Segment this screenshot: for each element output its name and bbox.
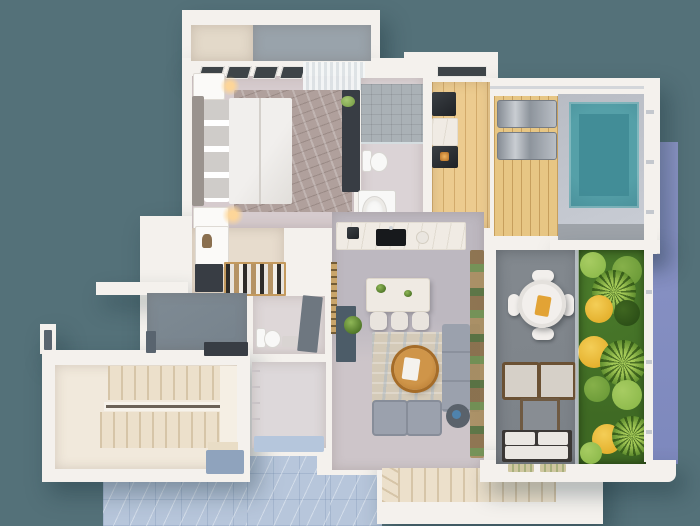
railing-post: [646, 160, 654, 164]
table-lamp-glow: [220, 76, 240, 96]
stair-side-landing: [220, 366, 237, 452]
powder-toilet-bowl: [264, 330, 281, 348]
kitchenette-cabinet: [432, 118, 458, 146]
pool-deep-zone: [579, 114, 629, 196]
wardrobe-rail-with-clothes: [224, 262, 286, 296]
blue-floor-right: [330, 468, 382, 526]
wall-shelf: [252, 418, 260, 420]
railing-post: [646, 290, 652, 294]
dining-stool: [370, 312, 387, 330]
stair-entry-door: [44, 330, 52, 350]
lower-threshold-mat: [206, 450, 244, 474]
outdoor-armchair: [502, 362, 540, 400]
wall-shelf: [252, 402, 260, 404]
shrub: [580, 442, 602, 464]
sun-lounger: [497, 132, 557, 160]
balcony-floor-cream: [191, 25, 253, 61]
pool-walkway: [558, 224, 646, 240]
hall-console-table: [204, 342, 248, 356]
pool-railing-top: [490, 86, 650, 89]
sectional-sofa-seats: [442, 324, 470, 412]
bedroom-window-icon: [279, 66, 306, 79]
entry-door: [146, 331, 156, 353]
door-mat: [540, 464, 566, 472]
potted-plant: [344, 316, 362, 334]
bed-headboard: [192, 96, 204, 206]
dining-stool: [391, 312, 408, 330]
closet-dresser: [195, 264, 223, 292]
powder-washbasin: [282, 336, 298, 347]
blue-floor-left: [103, 476, 249, 526]
floor-plan-scene: [0, 0, 700, 526]
stair-handrail: [106, 405, 226, 408]
dining-stool: [412, 312, 429, 330]
glass-railing-left: [575, 250, 579, 464]
yellow-flower-cluster: [585, 295, 613, 323]
shrub: [584, 376, 610, 402]
balcony-floor: [253, 25, 371, 61]
toilet-bowl: [370, 152, 388, 172]
table-greenery: [376, 284, 386, 293]
duvet-seam: [259, 98, 261, 204]
terrace-chair: [532, 328, 554, 340]
green-desk-chair: [341, 96, 355, 107]
sheer-curtain: [303, 62, 365, 90]
counter-plate: [416, 231, 429, 244]
bed-pillows: [204, 100, 230, 202]
door-mat: [508, 464, 534, 472]
shrub: [614, 300, 640, 326]
alcove-floor-mat: [254, 436, 324, 452]
outdoor-sofa-cushion: [505, 432, 535, 445]
kitchen-sink-and-hob: [376, 229, 406, 246]
wall-shelf: [252, 386, 260, 388]
table-greenery: [404, 290, 412, 297]
coffee-station: [432, 92, 456, 116]
tall-teal-cabinet: [336, 306, 356, 362]
counter-appliance: [347, 227, 359, 239]
railing-post: [646, 430, 652, 434]
bedroom-window-icon: [252, 66, 279, 79]
railing-post: [646, 110, 654, 114]
oven-glow: [440, 152, 449, 161]
coffee-table-tray: [402, 357, 421, 381]
shelf-decor: [202, 234, 212, 248]
railing-post: [646, 210, 654, 214]
palm-plant: [600, 340, 646, 386]
table-lamp-glow: [222, 204, 244, 226]
armchair: [372, 400, 408, 436]
railing-post: [646, 360, 652, 364]
outdoor-sofa-cushion: [538, 432, 568, 445]
stair-upper-flight: [108, 366, 236, 400]
outdoor-sofa-seat: [505, 446, 568, 459]
wall-shelf: [252, 370, 260, 372]
blue-vase: [452, 410, 461, 419]
shower: [361, 84, 423, 144]
clerestory-window: [437, 66, 487, 77]
armchair: [406, 400, 442, 436]
shrub: [612, 380, 642, 410]
outdoor-armchair: [538, 362, 576, 400]
faucet: [389, 226, 393, 230]
dried-plant-shelf: [470, 250, 484, 458]
sun-lounger: [497, 100, 557, 128]
island-dining-table: [366, 278, 430, 312]
